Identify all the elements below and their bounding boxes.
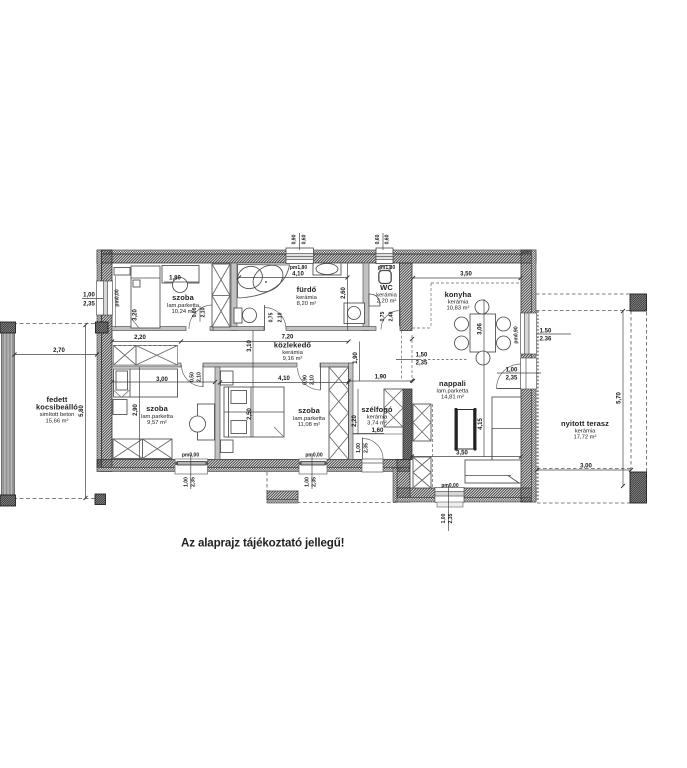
svg-text:4,15: 4,15 <box>478 418 484 430</box>
svg-text:pm0,90: pm0,90 <box>514 326 520 343</box>
svg-text:pm0,00: pm0,00 <box>182 453 199 459</box>
svg-text:0,60: 0,60 <box>302 234 308 244</box>
svg-text:kocsibeálló: kocsibeálló <box>36 403 78 412</box>
svg-text:2,10: 2,10 <box>197 372 203 382</box>
svg-text:8,20 m²: 8,20 m² <box>297 301 317 307</box>
svg-text:5,80: 5,80 <box>79 405 85 417</box>
svg-text:2,10: 2,10 <box>278 312 284 322</box>
svg-text:fürdő: fürdő <box>297 285 317 294</box>
svg-text:1,00: 1,00 <box>305 477 311 487</box>
svg-text:1,00: 1,00 <box>356 443 362 453</box>
svg-text:11,08 m²: 11,08 m² <box>298 422 321 428</box>
svg-text:1,90: 1,90 <box>353 352 359 364</box>
svg-text:szélfogó: szélfogó <box>361 405 393 414</box>
svg-text:4,10: 4,10 <box>278 376 290 382</box>
svg-text:2,90: 2,90 <box>133 404 139 416</box>
svg-text:0,50: 0,50 <box>190 372 196 382</box>
svg-text:1,50: 1,50 <box>416 353 428 359</box>
svg-text:3,10: 3,10 <box>247 340 253 352</box>
svg-text:2,10: 2,10 <box>310 375 316 385</box>
svg-text:1,60: 1,60 <box>372 428 384 434</box>
svg-text:1,00: 1,00 <box>83 293 95 299</box>
svg-text:1.50: 1.50 <box>540 329 552 335</box>
svg-text:2,10: 2,10 <box>201 307 207 317</box>
svg-text:2,20: 2,20 <box>352 415 358 427</box>
svg-text:0,60: 0,60 <box>385 234 391 244</box>
svg-text:4,10: 4,10 <box>292 272 304 278</box>
svg-text:0,60: 0,60 <box>375 234 381 244</box>
svg-text:3,00: 3,00 <box>580 464 592 470</box>
svg-text:szoba: szoba <box>146 404 168 413</box>
svg-text:2,35: 2,35 <box>506 376 518 382</box>
svg-text:0,60: 0,60 <box>192 307 198 317</box>
svg-text:2,20: 2,20 <box>134 335 146 341</box>
svg-text:7,20: 7,20 <box>282 335 294 341</box>
svg-text:2,35: 2,35 <box>83 302 95 308</box>
svg-text:3,20: 3,20 <box>133 309 139 321</box>
svg-text:WC: WC <box>380 283 393 292</box>
svg-text:2,35: 2,35 <box>416 361 428 367</box>
svg-text:pm0,00: pm0,00 <box>305 453 322 459</box>
svg-text:2.36: 2.36 <box>540 337 552 343</box>
svg-text:szoba: szoba <box>298 406 320 415</box>
svg-text:nyitott terasz: nyitott terasz <box>561 419 609 428</box>
svg-text:1,00: 1,00 <box>441 513 447 523</box>
svg-text:2,50: 2,50 <box>247 408 253 420</box>
svg-text:0,75: 0,75 <box>380 311 386 321</box>
svg-text:2,70: 2,70 <box>53 348 65 354</box>
svg-text:15,66 m²: 15,66 m² <box>46 419 69 425</box>
svg-text:1,00: 1,00 <box>184 477 190 487</box>
svg-text:2,40: 2,40 <box>389 311 395 321</box>
svg-text:14,81 m²: 14,81 m² <box>441 395 464 401</box>
svg-text:Az alaprajz tájékoztató jelleg: Az alaprajz tájékoztató jellegű! <box>181 537 344 550</box>
svg-text:17,72 m²: 17,72 m² <box>574 435 597 441</box>
svg-text:pm0,00: pm0,00 <box>441 483 458 489</box>
svg-text:2,60: 2,60 <box>341 287 347 299</box>
svg-text:1,00: 1,00 <box>506 368 518 374</box>
svg-text:közlekedő: közlekedő <box>274 341 311 350</box>
svg-text:pm1,80: pm1,80 <box>290 265 307 271</box>
svg-text:1,80: 1,80 <box>169 276 181 282</box>
svg-text:9,57 m²: 9,57 m² <box>147 420 167 426</box>
svg-text:1,90: 1,90 <box>375 375 387 381</box>
svg-text:0,75: 0,75 <box>269 312 275 322</box>
svg-text:0,90: 0,90 <box>303 375 309 385</box>
svg-text:2,35: 2,35 <box>312 477 318 487</box>
svg-text:2,35: 2,35 <box>191 477 197 487</box>
svg-text:pm1,80: pm1,80 <box>378 265 395 271</box>
svg-text:3,74 m²: 3,74 m² <box>367 421 387 427</box>
svg-text:nappali: nappali <box>439 379 466 388</box>
svg-text:3,50: 3,50 <box>460 272 472 278</box>
svg-text:simított beton: simított beton <box>40 412 75 418</box>
svg-text:3,06: 3,06 <box>478 323 484 335</box>
svg-text:5,70: 5,70 <box>617 392 623 404</box>
svg-text:3,50: 3,50 <box>456 451 468 457</box>
svg-text:2,35: 2,35 <box>448 513 454 523</box>
svg-text:10,83 m²: 10,83 m² <box>447 306 470 312</box>
svg-text:2,35: 2,35 <box>364 443 370 453</box>
svg-text:2,20 m²: 2,20 m² <box>377 299 397 305</box>
svg-text:9,16 m²: 9,16 m² <box>283 356 303 362</box>
svg-text:0,90: 0,90 <box>292 234 298 244</box>
svg-text:szoba: szoba <box>172 293 194 302</box>
svg-text:3,00: 3,00 <box>156 377 168 383</box>
svg-text:konyha: konyha <box>445 290 473 299</box>
svg-text:pm0,00: pm0,00 <box>115 289 121 306</box>
